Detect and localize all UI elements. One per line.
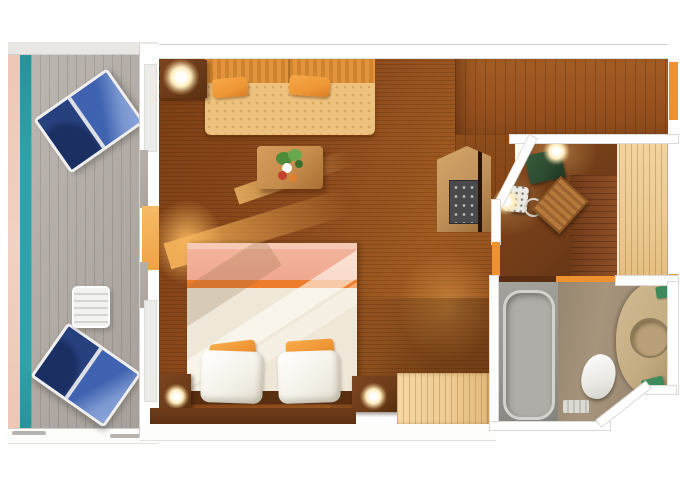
sofa-throw-pillow: [211, 76, 249, 98]
cabinet-divider-edge: [478, 148, 482, 232]
wardrobe-cabinet: [617, 143, 670, 282]
desk-nook-left-wall: [492, 200, 500, 244]
nightstand-lamp-glow: [360, 383, 387, 410]
top-exterior-wall: [150, 44, 678, 59]
bed-pillow: [277, 350, 341, 404]
minibar-control-panel: [449, 180, 481, 224]
balcony-railing: [20, 50, 31, 436]
plant-flower: [289, 174, 297, 182]
bathtub: [503, 290, 555, 420]
nightstand-lamp-glow: [164, 384, 189, 409]
balcony-window: [144, 64, 157, 152]
ceiling-lamp-glow: [163, 59, 199, 95]
plant-leaves: [295, 160, 303, 168]
plant-flower: [278, 171, 287, 180]
bottom-interior-wall: [150, 408, 356, 424]
sofa-throw-pillow: [288, 75, 330, 98]
balcony-side-table: [72, 286, 110, 328]
balcony-door-opening: [142, 206, 159, 270]
balcony-divider-wall: [139, 44, 159, 436]
bed-pillow: [200, 350, 264, 404]
cabin-entry-door: [669, 62, 678, 120]
bottom-exterior-wall: [140, 424, 496, 441]
ship-hull-strip: [8, 46, 20, 440]
sink-basin: [630, 318, 670, 358]
entry-corridor-floor: [455, 56, 668, 135]
bath-step: [563, 400, 589, 413]
stateroom-floor-plan: [0, 0, 680, 486]
railing-post: [110, 434, 140, 438]
railing-post: [12, 431, 46, 435]
bathroom-wall: [490, 422, 610, 430]
balcony-top-trim: [8, 42, 158, 55]
balcony-window: [144, 300, 157, 402]
dresser: [397, 373, 492, 425]
wall-notch: [140, 150, 148, 208]
minibar-cabinet: [437, 146, 491, 232]
toilet: [577, 351, 620, 403]
bathroom-wall: [668, 282, 678, 394]
bathroom-wall: [490, 276, 498, 430]
bathroom-wall: [646, 386, 676, 394]
double-bed: [187, 243, 357, 404]
bathroom: [496, 282, 672, 424]
